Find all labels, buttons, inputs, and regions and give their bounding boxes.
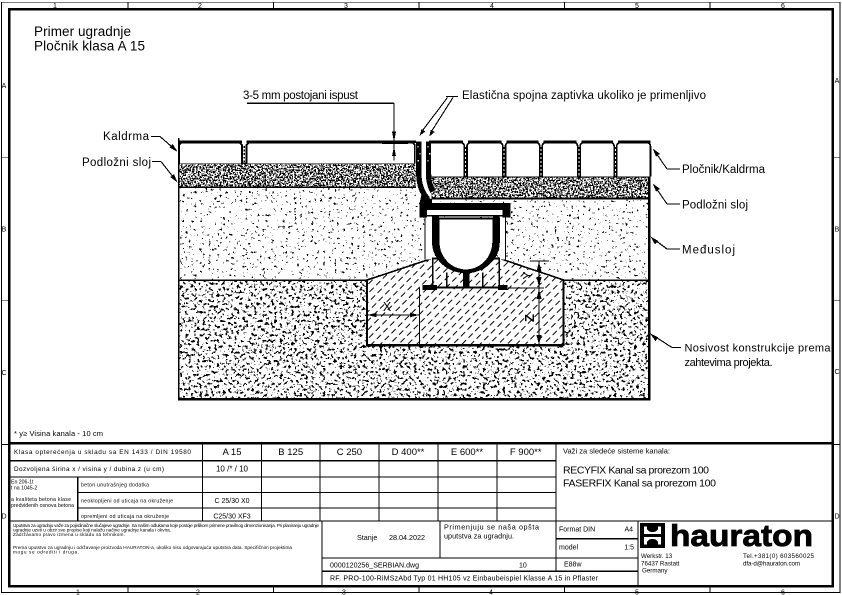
svg-text:predviđenih osnova betona: predviđenih osnova betona [11,503,74,509]
svg-text:5: 5 [635,3,639,10]
svg-text:FASERFIX Kanal sa prorezom 100: FASERFIX Kanal sa prorezom 100 [563,478,716,490]
svg-text:Dozvoljena širina x / visina y: Dozvoljena širina x / visina y / dubina … [14,466,164,473]
svg-text:beton unutrašnjeg dodatka: beton unutrašnjeg dodatka [81,483,149,489]
svg-text:mogu se odrediti i druga.: mogu se odrediti i druga. [13,550,79,555]
svg-text:A: A [835,78,840,85]
svg-text:D: D [1,514,6,521]
svg-text:Važi za sledeće sisteme kanala: Važi za sledeće sisteme kanala: [563,447,670,456]
svg-text:Pločnik klasa A 15: Pločnik klasa A 15 [34,39,145,54]
svg-text:opremljeni od uticaja na okruž: opremljeni od uticaja na okruženje [81,514,169,520]
svg-text:4: 4 [490,3,494,10]
svg-text:Z: Z [522,314,537,322]
svg-text:D: D [834,514,839,521]
svg-text:Format DIN: Format DIN [559,527,595,534]
svg-text:6: 6 [781,3,785,10]
svg-text:E 600**: E 600** [451,447,484,458]
svg-text:Klasa opterećenja u skladu sa: Klasa opterećenja u skladu sa EN 1433 / … [14,449,191,456]
svg-text:1:5: 1:5 [624,545,634,552]
svg-text:Germany: Germany [642,568,668,575]
svg-text:Podložni sloj: Podložni sloj [682,200,748,212]
svg-text:D 400**: D 400** [392,447,425,458]
svg-text:6: 6 [781,590,785,595]
svg-text:model: model [559,545,579,552]
svg-text:Kaldrma: Kaldrma [103,131,150,143]
svg-text:Tel.+381(0) 603560025: Tel.+381(0) 603560025 [743,553,815,560]
svg-text:RECYFIX Kanal sa prorezom 100: RECYFIX Kanal sa prorezom 100 [563,465,709,477]
svg-text:10: 10 [519,563,527,570]
svg-text:B 125: B 125 [278,447,303,458]
svg-text:C: C [1,370,6,377]
svg-text:C 250: C 250 [337,447,362,458]
svg-text:2: 2 [196,590,200,595]
svg-text:Međusloj: Međusloj [682,245,735,257]
svg-text:Primenjuju se naša opšta: Primenjuju se naša opšta [444,523,539,532]
svg-text:Y: Y [521,271,535,279]
svg-text:B: B [2,227,7,234]
svg-text:2: 2 [198,3,202,10]
svg-text:Elastična spojna zaptivka ukol: Elastična spojna zaptivka ukoliko je pri… [462,90,706,102]
svg-text:C25/30 XF3: C25/30 XF3 [213,514,250,521]
svg-text:hauraton: hauraton [670,518,813,553]
svg-text:Werkstr. 13: Werkstr. 13 [641,553,673,560]
svg-text:Stanje: Stanje [357,533,377,542]
svg-text:5: 5 [635,590,639,595]
svg-text:zahtevima projekta.: zahtevima projekta. [685,357,773,369]
svg-text:t na 1045-2: t na 1045-2 [11,486,37,492]
svg-text:1: 1 [76,590,80,595]
svg-text:Pločnik/Kaldrma: Pločnik/Kaldrma [682,164,766,176]
svg-text:3-5 mm postojani ispust: 3-5 mm postojani ispust [243,90,359,102]
svg-text:A4: A4 [624,527,633,534]
svg-text:Zadržavamo pravo izmena u skla: Zadržavamo pravo izmena u skladu sa tehn… [13,532,125,537]
svg-text:0000120256_SERBIAN.dwg: 0000120256_SERBIAN.dwg [330,563,419,570]
svg-text:1: 1 [53,3,57,10]
svg-text:Primer ugradnje: Primer ugradnje [34,24,131,39]
svg-text:Nosivost konstrukcije prema: Nosivost konstrukcije prema [685,343,832,355]
svg-text:E88w: E88w [564,562,582,569]
svg-text:28.04.2022: 28.04.2022 [389,533,425,542]
svg-text:76437 Rastatt: 76437 Rastatt [641,561,680,568]
svg-text:F 900**: F 900** [510,447,542,458]
svg-text:* y≥ Visina kanala - 10 cm: * y≥ Visina kanala - 10 cm [14,429,103,438]
svg-text:3: 3 [342,590,346,595]
svg-text:3: 3 [344,3,348,10]
svg-text:C 25/30 X0: C 25/30 X0 [214,498,249,505]
svg-text:uputstva za ugradnju.: uputstva za ugradnju. [444,532,514,541]
svg-text:A: A [2,83,7,90]
svg-text:4: 4 [489,590,493,595]
svg-text:dfa-d@hauraton.com: dfa-d@hauraton.com [743,561,800,568]
svg-text:RF. PRO-100-RiMSzAbd Typ 01 HH: RF. PRO-100-RiMSzAbd Typ 01 HH105 vz Ein… [330,576,599,583]
svg-text:A 15: A 15 [222,447,241,458]
svg-text:Podložni sloj: Podložni sloj [82,157,151,169]
svg-text:X: X [383,300,392,314]
svg-text:B: B [835,227,840,234]
svg-text:10 /* / 10: 10 /* / 10 [216,465,249,474]
svg-text:C: C [834,369,839,376]
svg-text:neoklopljeni od uticaja na okr: neoklopljeni od uticaja na okruženje [81,499,173,505]
